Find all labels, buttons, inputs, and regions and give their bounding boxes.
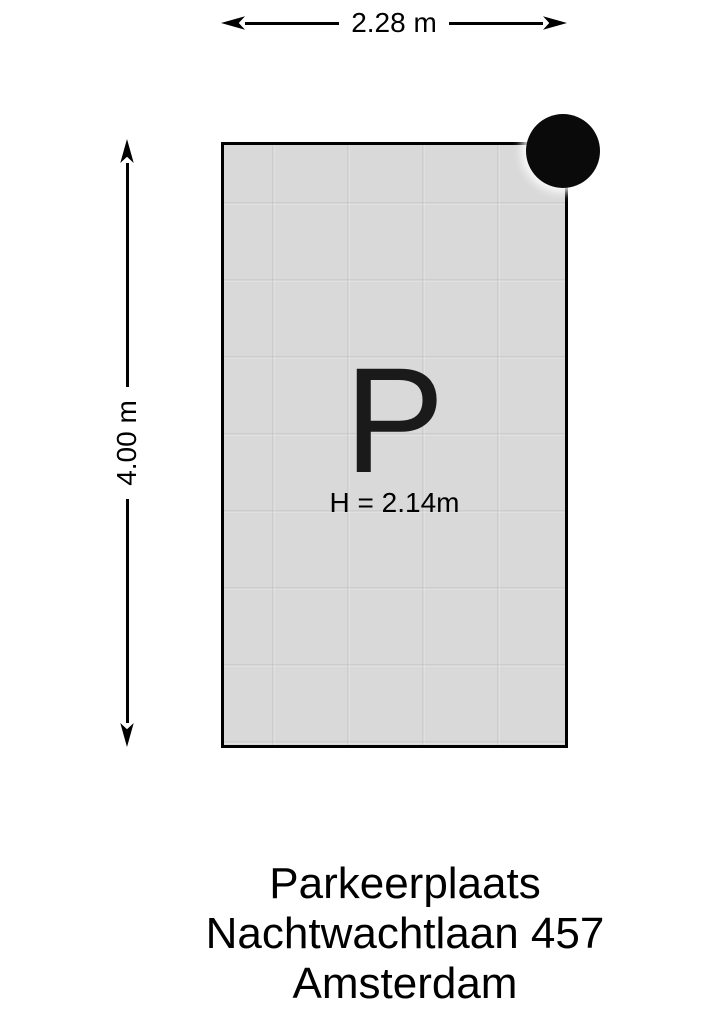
clearance-height-label: H = 2.14m xyxy=(224,489,565,517)
caption-city: Amsterdam xyxy=(95,959,715,1009)
width-dimension-label: 2.28 m xyxy=(351,9,437,37)
parking-symbol-group: P H = 2.14m xyxy=(224,345,565,517)
caption-address: Nachtwachtlaan 457 xyxy=(95,909,715,959)
arrowhead-down-icon xyxy=(120,723,134,747)
height-dimension-label-wrap: 4.00 m xyxy=(112,387,142,499)
pillar-marker-icon xyxy=(526,114,600,188)
arrowhead-up-icon xyxy=(120,139,134,163)
dimension-line xyxy=(126,163,129,387)
height-dimension-label: 4.00 m xyxy=(111,400,143,486)
dimension-line xyxy=(245,22,339,25)
dimension-line xyxy=(449,22,543,25)
caption-title: Parkeerplaats xyxy=(95,859,715,909)
floorplan-page: 2.28 m 4.00 m P H = 2.14m Parkeerplaats … xyxy=(0,0,720,1017)
width-dimension: 2.28 m xyxy=(221,9,567,37)
arrowhead-left-icon xyxy=(221,16,245,30)
height-dimension: 4.00 m xyxy=(112,139,142,747)
parking-space: P H = 2.14m xyxy=(221,142,568,748)
dimension-line xyxy=(126,499,129,723)
arrowhead-right-icon xyxy=(543,16,567,30)
parking-symbol: P xyxy=(224,345,565,495)
caption: Parkeerplaats Nachtwachtlaan 457 Amsterd… xyxy=(95,859,715,1009)
